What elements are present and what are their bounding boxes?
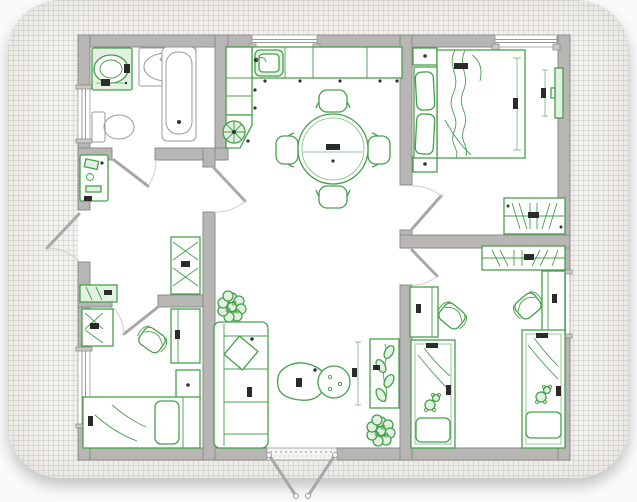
hall-sideboard — [80, 285, 117, 302]
hall-console-table — [80, 155, 108, 201]
floor-plan-canvas — [0, 0, 637, 502]
kids-wardrobe — [482, 246, 565, 270]
kids-desk-right — [542, 271, 565, 331]
kids-desk-left — [410, 287, 438, 337]
master-nightstand-bottom — [413, 157, 437, 172]
kitchen-sink — [254, 50, 283, 76]
master-nightstand-top — [413, 48, 437, 65]
bedroom2-nightstand — [176, 370, 200, 400]
bedroom2-bed — [83, 397, 200, 448]
kids-bed-right — [522, 330, 565, 448]
bathtub — [162, 47, 196, 141]
coffee-tables — [278, 363, 351, 400]
kids-bed-left — [411, 340, 455, 448]
window-left-bathroom — [76, 85, 92, 143]
master-wardrobe — [504, 198, 565, 234]
kitchen-counter-left-run — [226, 47, 257, 115]
bedroom2-desk — [171, 309, 200, 363]
entrance-door — [47, 214, 79, 261]
bedroom2-wardrobe — [82, 309, 113, 346]
hall-wardrobe — [171, 237, 200, 294]
sofa — [214, 322, 268, 448]
french-doors — [267, 448, 338, 499]
